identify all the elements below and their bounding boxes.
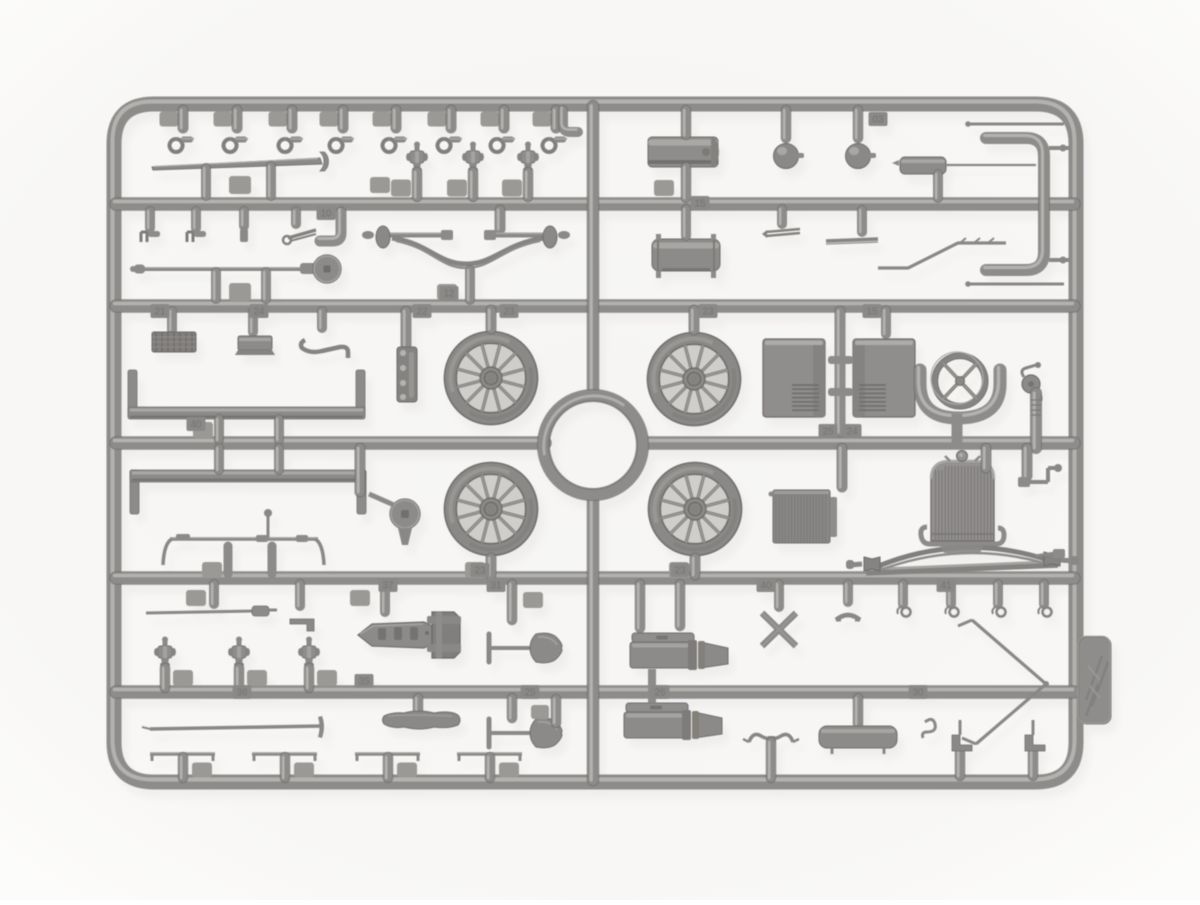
- svg-text:15: 15: [866, 307, 878, 318]
- svg-text:12: 12: [443, 289, 455, 300]
- svg-text:41: 41: [940, 581, 952, 592]
- svg-text:03: 03: [872, 115, 884, 126]
- svg-text:30: 30: [912, 688, 924, 699]
- svg-text:36: 36: [236, 688, 248, 699]
- svg-text:25: 25: [822, 427, 834, 438]
- svg-text:24: 24: [846, 427, 858, 438]
- svg-text:40: 40: [760, 581, 772, 592]
- svg-text:40: 40: [190, 420, 202, 431]
- svg-text:24: 24: [253, 307, 265, 318]
- svg-text:35: 35: [358, 677, 370, 688]
- svg-text:22: 22: [416, 307, 428, 318]
- svg-text:23: 23: [474, 566, 486, 577]
- svg-text:25: 25: [524, 688, 536, 699]
- svg-text:23: 23: [674, 566, 686, 577]
- svg-text:37: 37: [382, 581, 394, 592]
- svg-text:26: 26: [654, 688, 666, 699]
- svg-text:21: 21: [154, 307, 166, 318]
- svg-text:23: 23: [702, 307, 714, 318]
- svg-text:23: 23: [503, 307, 515, 318]
- svg-text:31: 31: [490, 581, 502, 592]
- svg-text:15: 15: [694, 199, 706, 210]
- svg-text:10: 10: [320, 209, 332, 220]
